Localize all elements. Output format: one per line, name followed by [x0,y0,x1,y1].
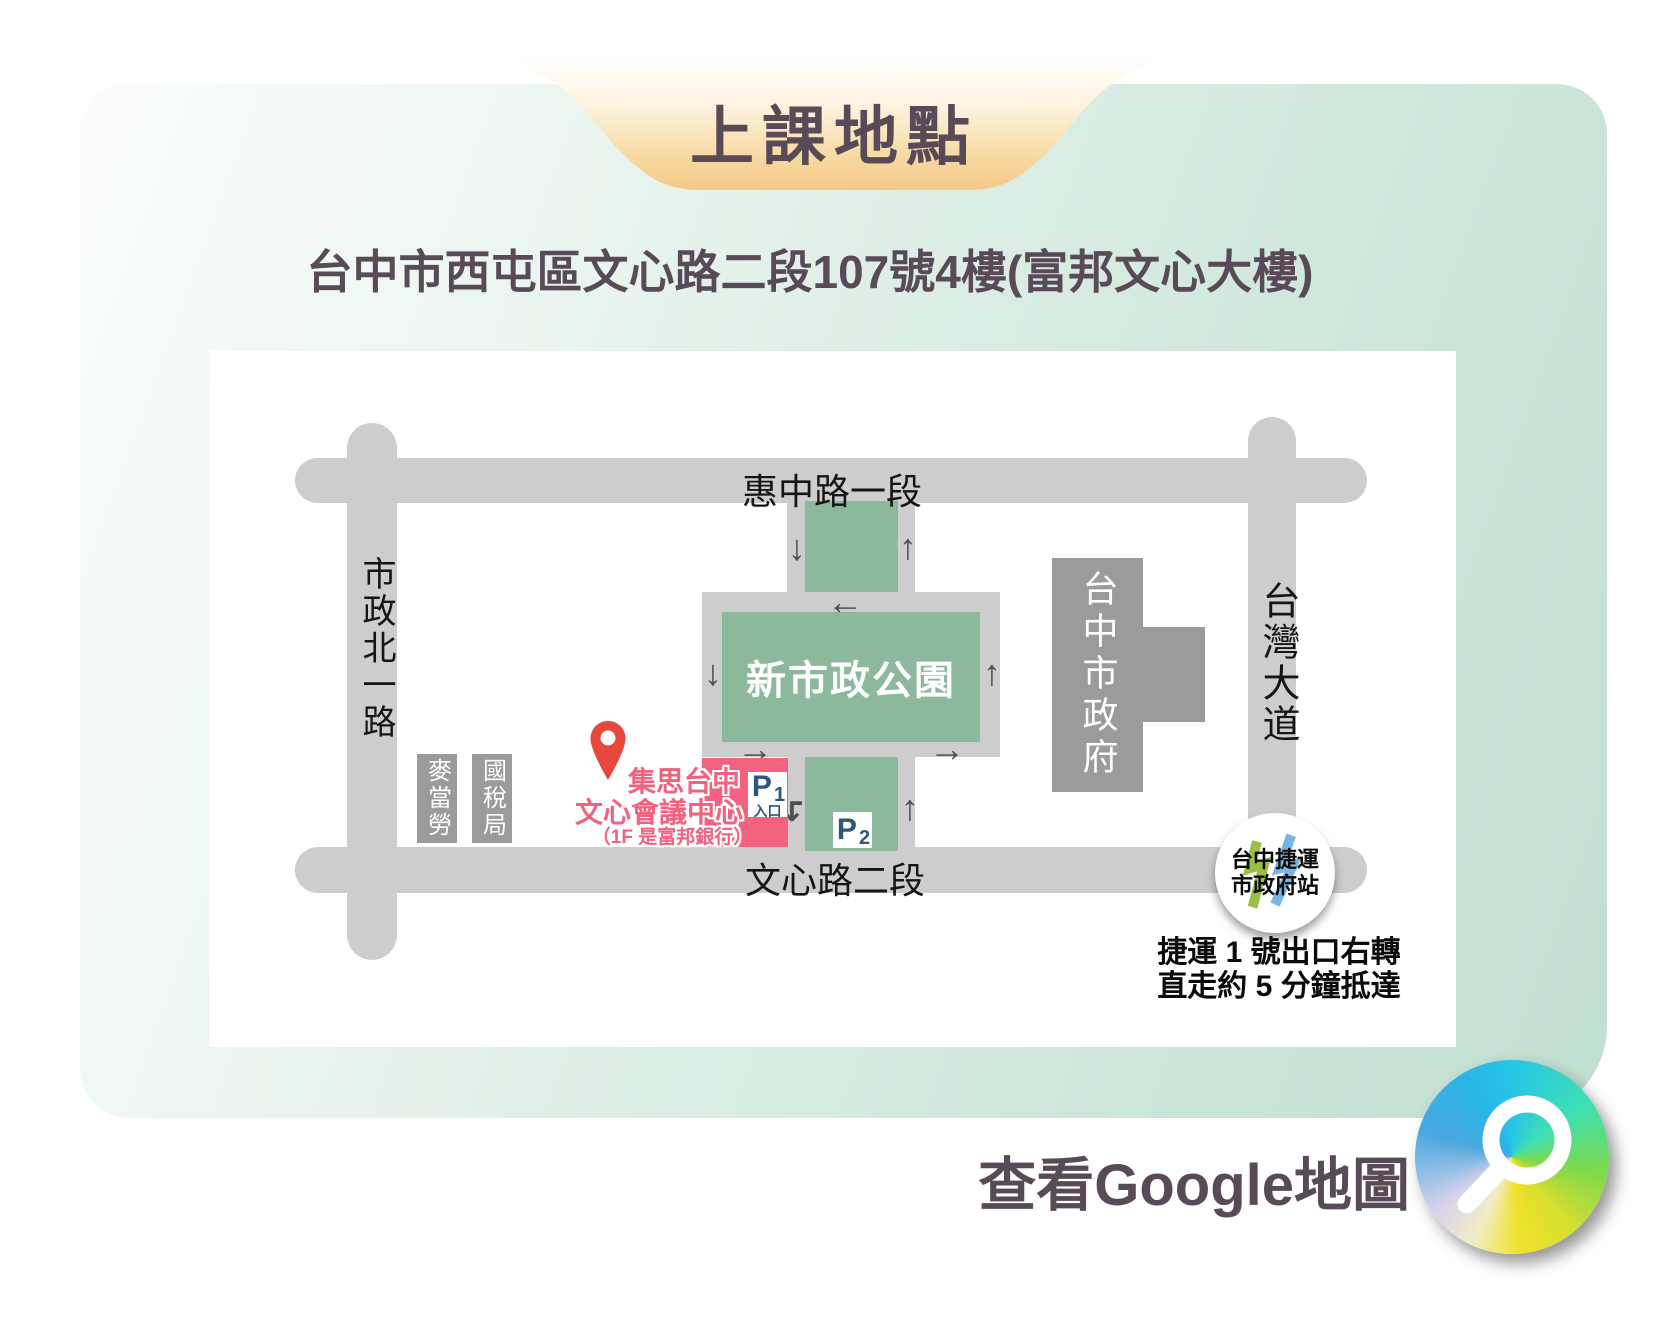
google-maps-button[interactable] [1415,1060,1609,1254]
building-city-hall-label: 台中市政府 [1072,570,1124,780]
building-tax-bureau: 國稅局 [472,754,512,843]
infographic-page: 上課地點 台中市西屯區文心路二段107號4樓(富邦文心大樓) 新市政公園 ↓ ↑… [0,0,1666,1320]
traffic-arrow-down-icon: ↓ [704,655,722,691]
p2-label: P2 [837,815,868,845]
road-label-taiwan-blvd: 台灣大道 [1250,581,1305,745]
building-mcdonalds-label: 麥當勞 [420,758,455,839]
road-label-wenxin: 文心路二段 [745,852,925,904]
traffic-arrow-right-icon: → [929,731,965,767]
search-icon [1415,1060,1609,1254]
traffic-arrow-down-icon: ↓ [788,530,806,566]
page-title: 上課地點 [500,86,1168,178]
traffic-arrow-up-icon: ↑ [901,790,919,826]
mrt-station-name: 台中捷運 市政府站 [1231,847,1319,899]
building-tax-bureau-label: 國稅局 [475,758,510,839]
park-block: 新市政公園 [722,612,980,742]
traffic-arrow-left-icon: ← [827,584,863,620]
mrt-station-badge: 台中捷運 市政府站 [1215,813,1335,933]
address-line: 台中市西屯區文心路二段107號4樓(富邦文心大樓) [140,236,1480,302]
parking-p2-box: P2 [833,812,872,848]
building-mcdonalds: 麥當勞 [417,754,457,843]
park-label: 新市政公園 [746,648,956,706]
venue-name-line3: （1F 是富邦銀行） [592,822,752,849]
parking-p1-box: P1 入口 [748,772,787,817]
traffic-arrow-up-icon: ↑ [899,529,917,565]
p1-label: P1 [752,772,783,802]
location-pin-icon [589,720,627,782]
road-label-huizhong: 惠中路一段 [742,463,922,515]
building-city-hall: 台中市政府 [1052,558,1143,792]
mrt-directions-text: 捷運 1 號出口右轉 直走約 5 分鐘抵達 [1129,936,1429,1004]
google-maps-link-label[interactable]: 查看Google地圖 [700,1138,1410,1222]
traffic-arrow-up-icon: ↑ [983,655,1001,691]
road-label-shizheng-north: 市政北一路 [352,556,401,741]
building-city-hall-wing [1143,627,1205,722]
map-card: 新市政公園 ↓ ↑ ← ↓ ↑ → → ↴ ↑ 麥當勞 國稅局 台中市政府 P1… [209,351,1456,1047]
